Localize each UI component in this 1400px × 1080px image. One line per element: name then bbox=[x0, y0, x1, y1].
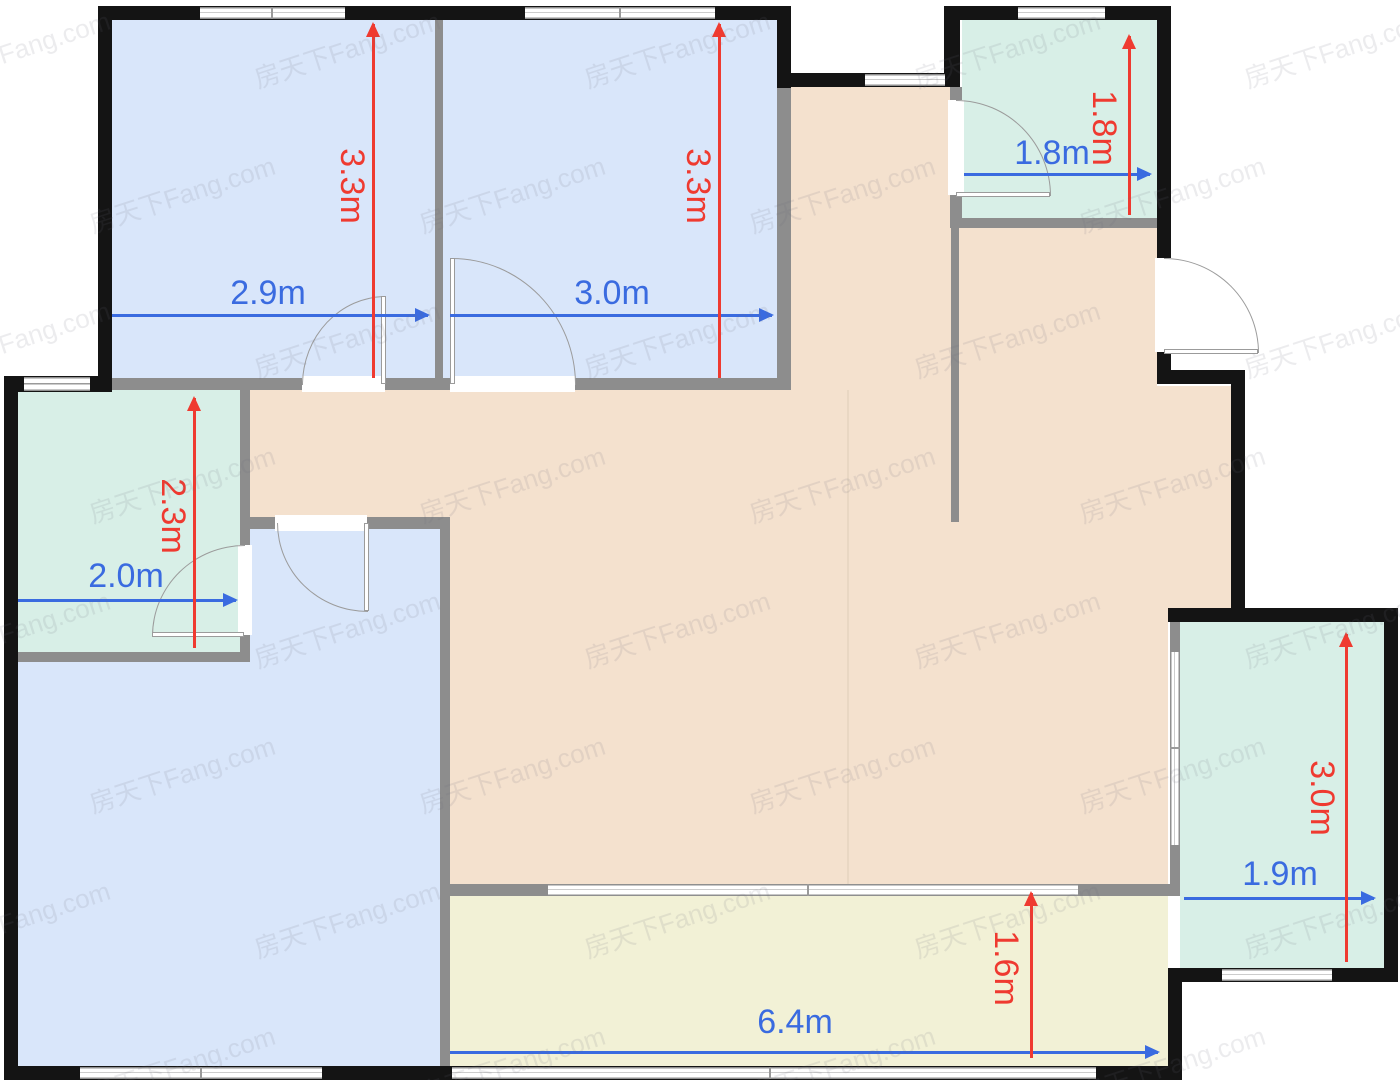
dim-arrow-bedroom1-depth bbox=[372, 24, 375, 378]
dim-label-balcony-depth: 1.6m bbox=[989, 930, 1023, 1006]
window-mullion bbox=[1170, 747, 1180, 749]
dim-arrow-bedroom1-width bbox=[112, 314, 428, 317]
sliding-door-divider bbox=[807, 884, 809, 896]
door-panel bbox=[381, 296, 386, 384]
wall bbox=[1170, 845, 1180, 896]
wall bbox=[951, 228, 959, 522]
window-mullion bbox=[619, 7, 621, 19]
floor-plan: 2.9m 3.0m 3.3m 3.3m 1.8m 1.8m 2.0m 2.3m … bbox=[0, 0, 1400, 1080]
dim-label-bedroom1-width: 2.9m bbox=[230, 276, 306, 310]
dim-label-bedroom2-width: 3.0m bbox=[574, 276, 650, 310]
window bbox=[1222, 969, 1332, 981]
wall bbox=[98, 6, 112, 392]
bedroom-1 bbox=[112, 20, 435, 378]
wall bbox=[1231, 370, 1245, 622]
dim-label-roomright-width: 1.9m bbox=[1242, 857, 1318, 891]
dim-arrow-bathtop-width bbox=[964, 173, 1150, 176]
door-panel bbox=[364, 523, 369, 611]
dim-label-roomright-depth: 3.0m bbox=[1305, 760, 1339, 836]
corridor-top bbox=[791, 87, 950, 390]
door-panel bbox=[152, 632, 244, 637]
wall bbox=[440, 884, 548, 896]
wall bbox=[240, 635, 250, 652]
hall-living-divider-line bbox=[847, 390, 849, 884]
entry-door-panel bbox=[1164, 349, 1258, 354]
utility-room-right bbox=[1180, 622, 1384, 968]
wall bbox=[1078, 884, 1180, 896]
watermark-text: 房天下Fang.com bbox=[1239, 1, 1400, 96]
dim-arrow-balcony-width bbox=[450, 1051, 1158, 1054]
dim-arrow-bedroom2-depth bbox=[718, 24, 721, 378]
dim-arrow-balcony-depth bbox=[1030, 893, 1033, 1058]
wall bbox=[950, 218, 1171, 228]
wall bbox=[367, 517, 450, 529]
wall bbox=[1168, 608, 1398, 622]
window-mullion bbox=[200, 1067, 202, 1079]
dim-label-balcony-width: 6.4m bbox=[757, 1005, 833, 1039]
wall bbox=[435, 20, 443, 390]
dim-arrow-bathleft-width bbox=[18, 599, 236, 602]
wall bbox=[950, 87, 962, 100]
wall bbox=[1170, 622, 1180, 652]
dim-arrow-roomright-depth bbox=[1345, 634, 1348, 962]
living-room bbox=[448, 608, 1168, 884]
wall bbox=[777, 87, 791, 390]
dim-label-bathleft-depth: 2.3m bbox=[156, 478, 190, 554]
door-panel bbox=[956, 192, 1050, 197]
window bbox=[865, 74, 945, 86]
dim-label-bathtop-depth: 1.8m bbox=[1087, 90, 1121, 166]
wall bbox=[440, 517, 450, 1066]
dim-label-bathleft-width: 2.0m bbox=[88, 559, 164, 593]
wall bbox=[1384, 608, 1398, 982]
sliding-door bbox=[548, 884, 1078, 896]
dim-label-bedroom1-depth: 3.3m bbox=[335, 148, 369, 224]
dim-arrow-bathtop-depth bbox=[1128, 36, 1131, 215]
dim-arrow-bathleft-depth bbox=[193, 398, 196, 648]
dim-arrow-bedroom2-width bbox=[450, 314, 772, 317]
window-mullion bbox=[769, 1067, 771, 1079]
wall bbox=[1157, 6, 1171, 258]
dim-label-bedroom2-depth: 3.3m bbox=[681, 148, 715, 224]
window bbox=[452, 1067, 1096, 1079]
entry-area bbox=[950, 228, 1157, 390]
wall bbox=[18, 652, 250, 662]
wall bbox=[4, 376, 18, 1080]
entry-door-arc bbox=[1164, 258, 1259, 353]
window bbox=[24, 377, 90, 391]
watermark-text: 房天下Fang.com bbox=[1239, 291, 1400, 386]
window-mullion bbox=[271, 7, 273, 19]
wall bbox=[244, 517, 277, 529]
wall bbox=[98, 378, 791, 390]
window bbox=[1018, 7, 1105, 19]
wall bbox=[1168, 968, 1182, 1080]
door-panel bbox=[450, 258, 455, 384]
dim-label-bathtop-width: 1.8m bbox=[1014, 136, 1090, 170]
